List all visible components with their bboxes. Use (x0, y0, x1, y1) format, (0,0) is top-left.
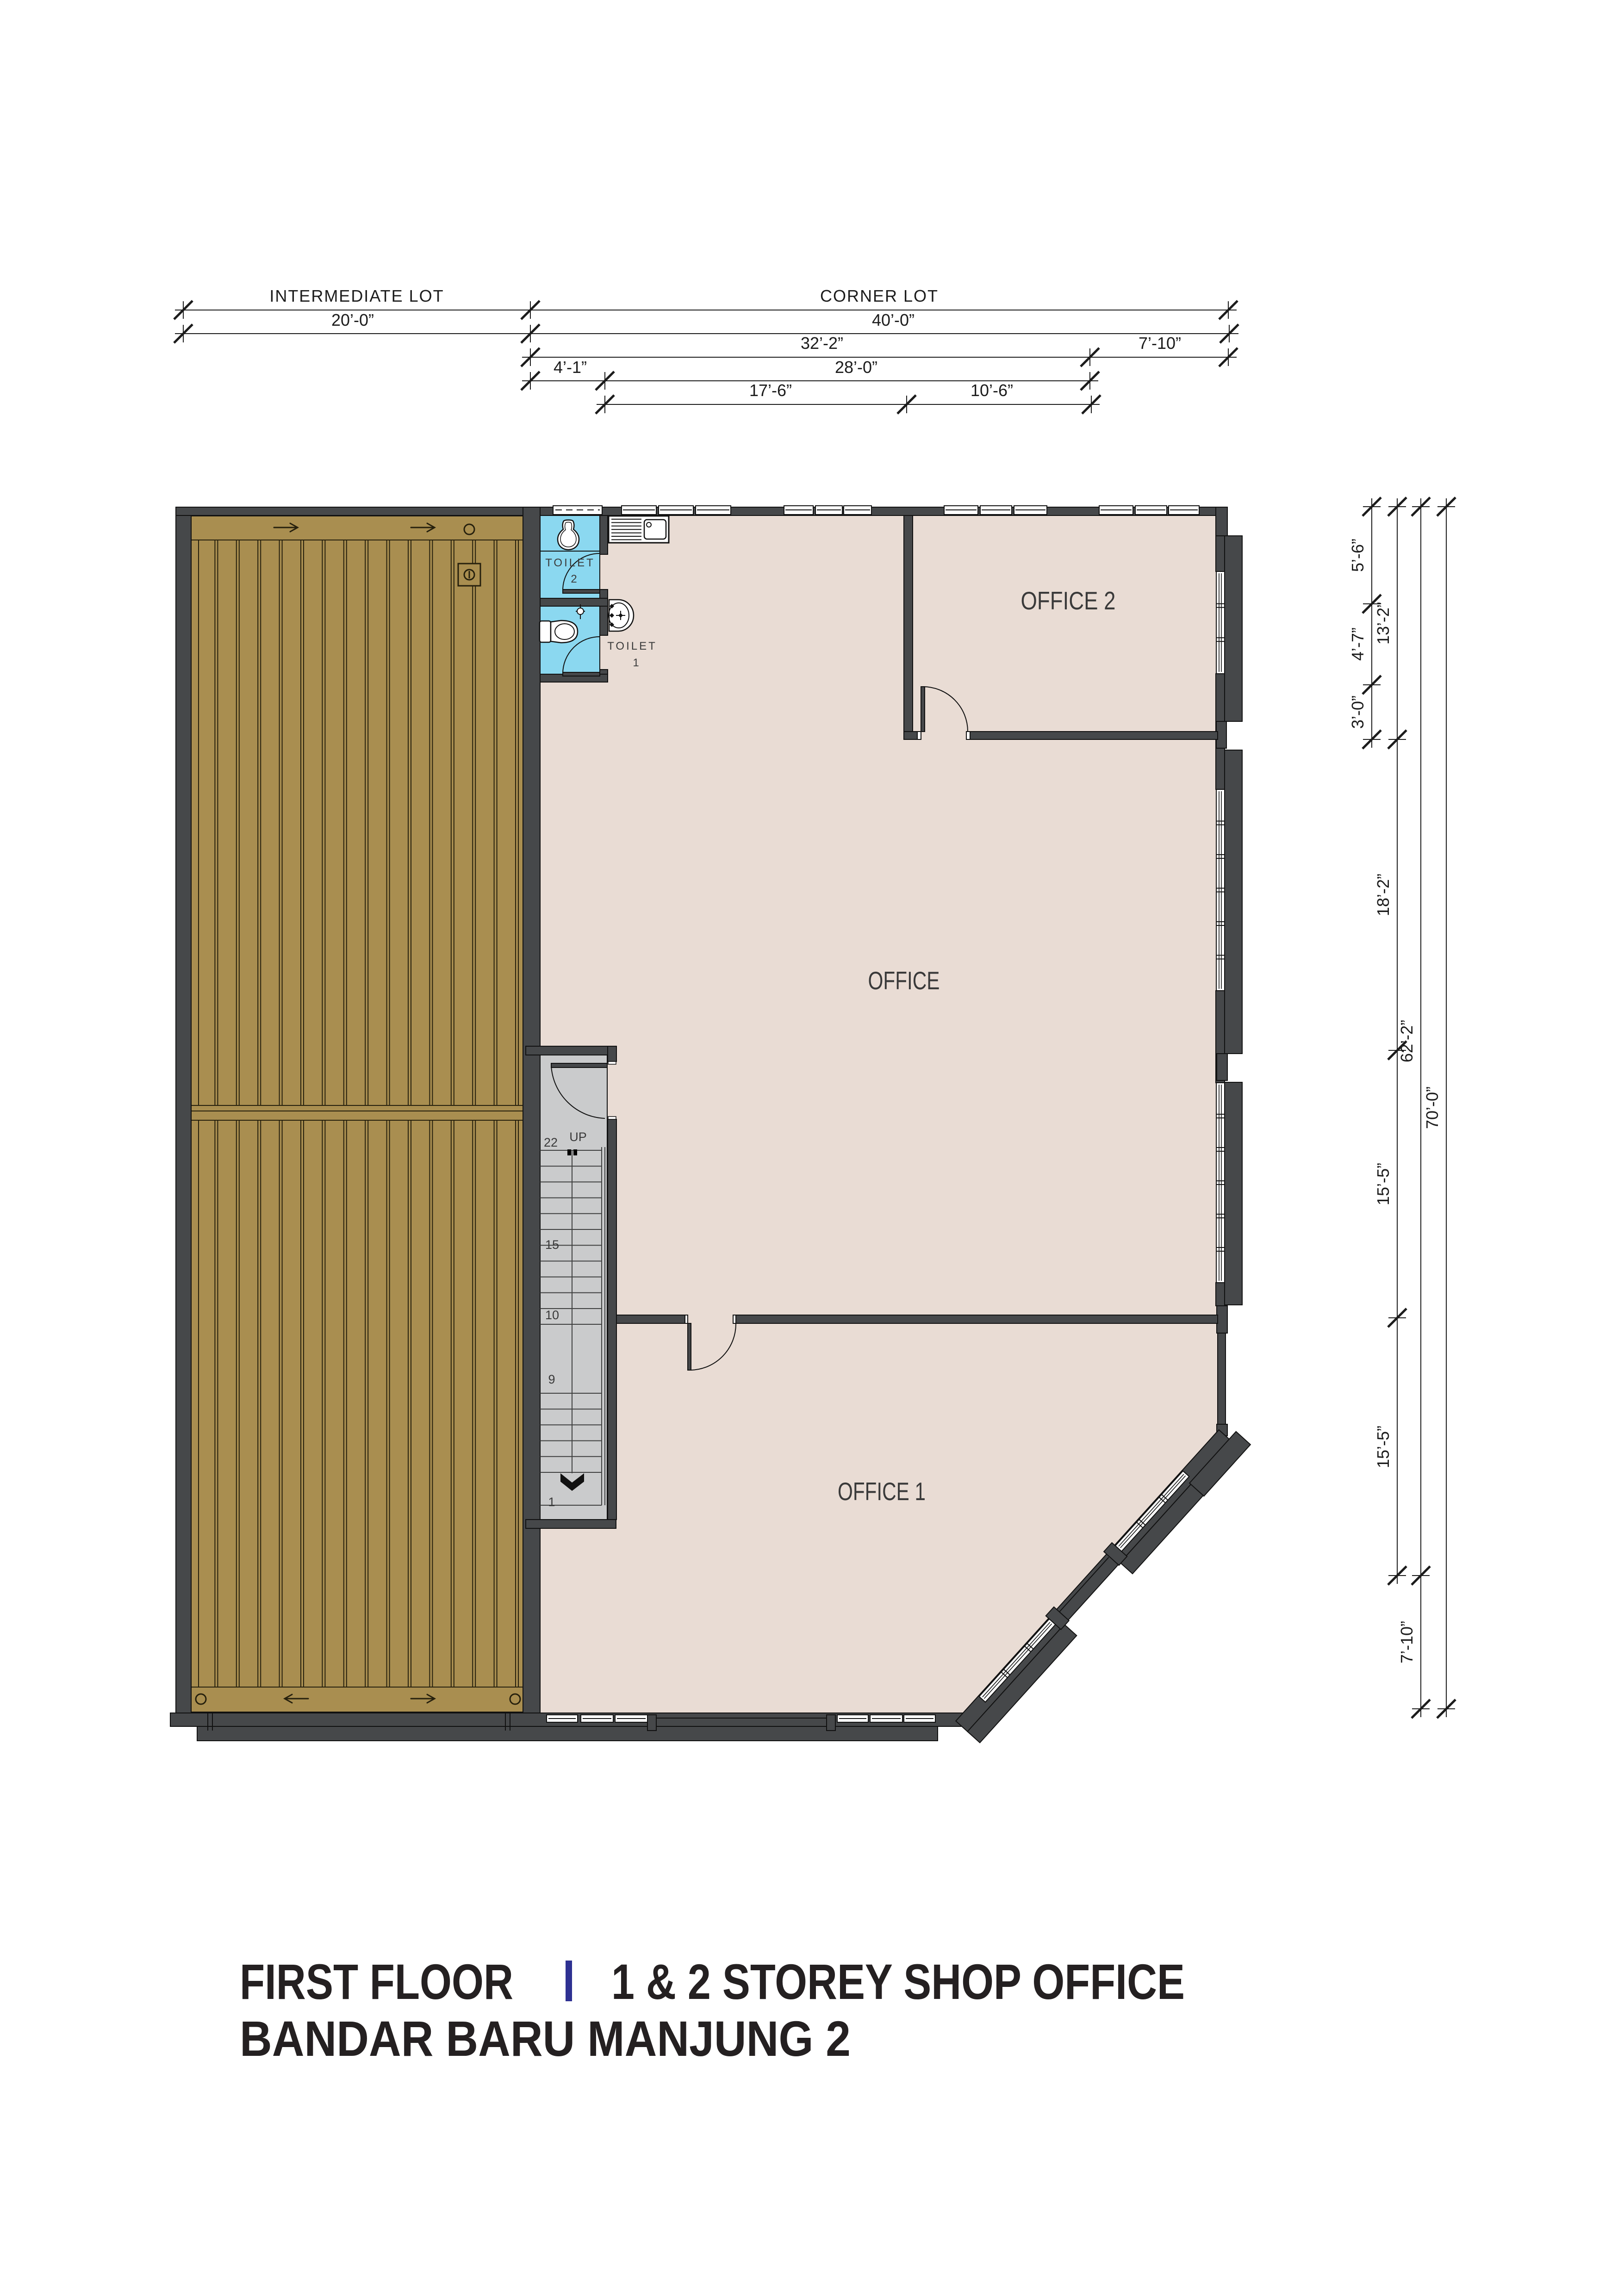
svg-text:BANDAR BARU MANJUNG 2: BANDAR BARU MANJUNG 2 (240, 2011, 851, 2066)
svg-text:3’-0”: 3’-0” (1348, 695, 1367, 729)
svg-text:13’-2”: 13’-2” (1374, 602, 1393, 645)
svg-text:1 & 2 STOREY SHOP OFFICE: 1 & 2 STOREY SHOP OFFICE (611, 1954, 1185, 2010)
svg-text:15’-5”: 15’-5” (1374, 1426, 1393, 1468)
svg-text:4’-7”: 4’-7” (1348, 627, 1367, 661)
svg-text:15: 15 (545, 1238, 559, 1252)
svg-text:10’-6”: 10’-6” (971, 381, 1013, 400)
svg-text:62’-2”: 62’-2” (1397, 1020, 1416, 1062)
svg-text:5’-6”: 5’-6” (1348, 539, 1367, 572)
svg-text:1: 1 (548, 1495, 555, 1509)
svg-text:70’-0”: 70’-0” (1423, 1086, 1442, 1129)
svg-text:1: 1 (633, 657, 639, 669)
svg-text:FIRST FLOOR: FIRST FLOOR (240, 1954, 513, 2010)
svg-text:OFFICE 1: OFFICE 1 (838, 1477, 926, 1506)
svg-text:40’-0”: 40’-0” (872, 310, 915, 329)
svg-text:UP: UP (569, 1130, 587, 1144)
svg-text:7’-10”: 7’-10” (1139, 334, 1181, 353)
svg-text:TOILET: TOILET (607, 640, 657, 652)
svg-text:7’-10”: 7’-10” (1397, 1621, 1416, 1663)
svg-text:32’-2”: 32’-2” (801, 334, 843, 353)
svg-text:22: 22 (544, 1136, 558, 1149)
svg-text:17’-6”: 17’-6” (749, 381, 792, 400)
svg-text:OFFICE 2: OFFICE 2 (1021, 586, 1116, 615)
svg-text:TOILET: TOILET (545, 557, 595, 569)
svg-text:2: 2 (571, 573, 577, 585)
svg-text:INTERMEDIATE LOT: INTERMEDIATE LOT (269, 286, 444, 305)
svg-text:CORNER LOT: CORNER LOT (820, 286, 939, 305)
svg-text:20’-0”: 20’-0” (331, 310, 374, 329)
svg-text:18’-2”: 18’-2” (1374, 874, 1393, 916)
svg-text:4’-1”: 4’-1” (554, 358, 587, 377)
svg-text:28’-0”: 28’-0” (835, 358, 877, 377)
svg-text:9: 9 (548, 1372, 555, 1386)
svg-text:OFFICE: OFFICE (868, 966, 940, 995)
svg-text:15’-5”: 15’-5” (1374, 1163, 1393, 1205)
svg-text:10: 10 (545, 1308, 559, 1322)
